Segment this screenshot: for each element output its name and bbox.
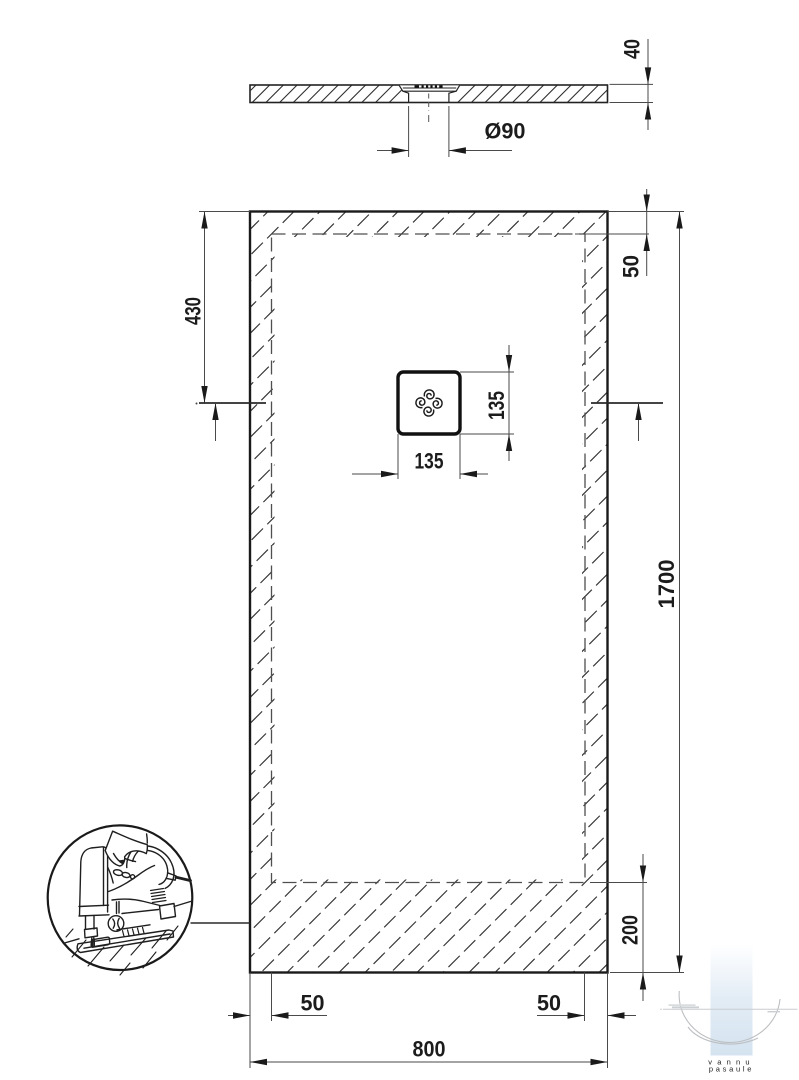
svg-text:430: 430 [181,297,206,325]
svg-text:40: 40 [620,39,645,59]
svg-text:Ø90: Ø90 [485,119,526,144]
svg-text:50: 50 [537,991,561,1016]
svg-text:800: 800 [413,1037,446,1062]
svg-text:50: 50 [301,991,325,1016]
svg-text:50: 50 [619,255,644,278]
svg-text:200: 200 [618,915,643,945]
svg-text:135: 135 [415,449,444,474]
svg-text:pasaule: pasaule [709,1065,754,1074]
svg-text:1700: 1700 [654,560,679,609]
svg-text:135: 135 [484,391,509,420]
